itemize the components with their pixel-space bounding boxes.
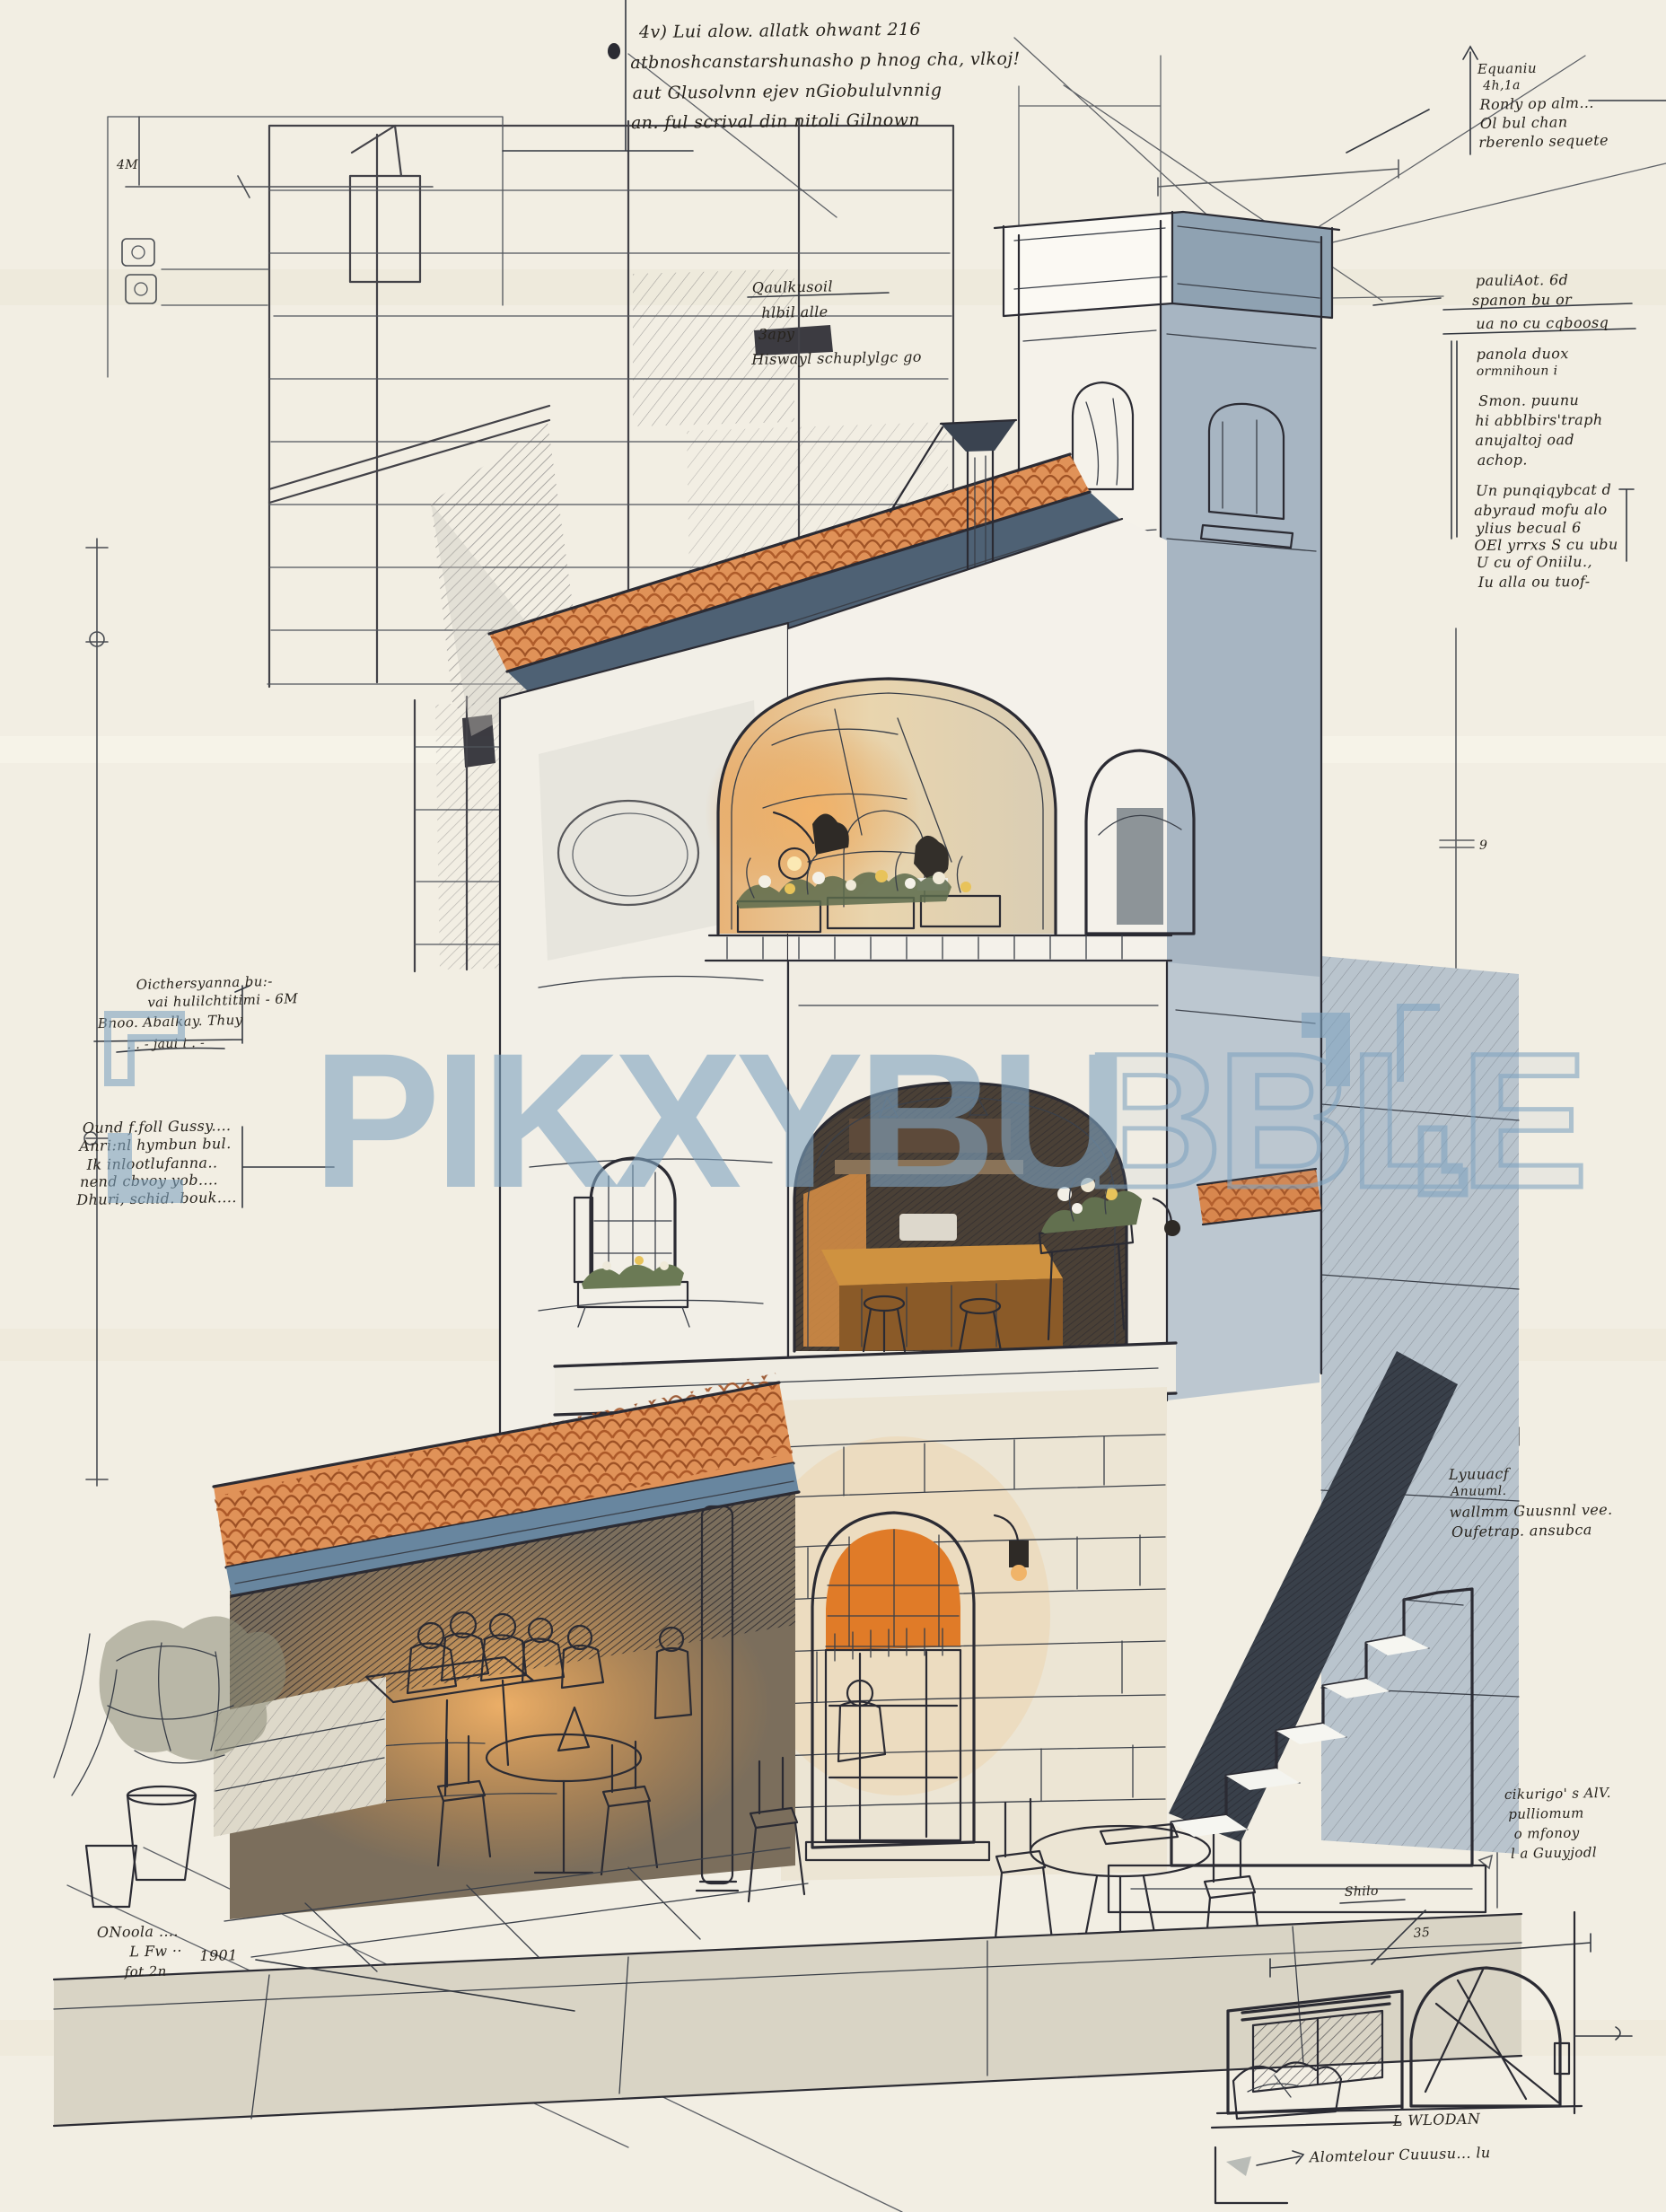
note-line: Un punqiqybcat d xyxy=(1476,481,1611,499)
note-line: OEl yrrxs S cu ubu xyxy=(1474,536,1618,554)
note-line: anujaltoj oad xyxy=(1475,431,1574,449)
tower-cornice xyxy=(995,212,1339,318)
top-note-line: an. ful scrival din nitoli Gilnown xyxy=(631,110,920,133)
plan-note-line: hlbil alle xyxy=(761,303,829,321)
ground-floor-wall xyxy=(745,1387,1167,1881)
note-line: 4h,1a xyxy=(1482,78,1521,93)
label-dim-35: 35 xyxy=(1413,1926,1431,1941)
note-line: Equaniu xyxy=(1477,60,1537,77)
plan-note-line: Hiswayl schuplylgc go xyxy=(750,348,922,368)
note-line: Smon. puunu xyxy=(1478,391,1579,409)
note-line: ormnihoun i xyxy=(1477,364,1558,379)
note-line: l a Guuyjodl xyxy=(1511,1844,1597,1862)
note-line: ua no cu cqboosq xyxy=(1476,314,1609,332)
plan-note-line: Qaulkusoil xyxy=(752,277,833,296)
label-shilo: Shilo xyxy=(1345,1884,1380,1900)
note-line: ylius becual 6 xyxy=(1475,519,1582,537)
sketch-page: 4v) Lui alow. allatk ohwant 216 atbnoshc… xyxy=(0,0,1666,2212)
note-line: U cu of Oniilu., xyxy=(1477,553,1592,571)
note-line: Ik inlootlufanna.. xyxy=(85,1154,217,1173)
architectural-sketch-canvas: 4v) Lui alow. allatk ohwant 216 atbnoshc… xyxy=(0,0,1666,2212)
top-note-line: 4v) Lui alow. allatk ohwant 216 xyxy=(638,20,921,42)
note-line: Oufetrap. ansubca xyxy=(1451,1521,1592,1540)
note-line: Ronly op alm... xyxy=(1478,94,1594,113)
note-line: hi abblbirs'traph xyxy=(1475,411,1602,429)
note-line: o mfonoy xyxy=(1514,1825,1580,1842)
note-line: cikurigo' s AlV. xyxy=(1504,1785,1611,1803)
label-dim-9: 9 xyxy=(1479,838,1487,853)
note-line: L Fw ·· xyxy=(128,1942,182,1960)
note-line: Anri:nl hymbun bul. xyxy=(77,1135,232,1154)
top-note-line: aut Glusolvnn ejev nGiobululvnnig xyxy=(633,80,943,103)
note-line: panola duox xyxy=(1477,345,1569,363)
caption-line: L WLODAN xyxy=(1392,2110,1482,2129)
note-line: Iu alla ou tuof- xyxy=(1477,573,1591,591)
note-line: wallmm Guusnnl vee. xyxy=(1449,1501,1612,1521)
note-line: Ound f.foll Gussy.... xyxy=(83,1117,232,1137)
note-line: achop. xyxy=(1477,452,1528,469)
note-line: pulliomum xyxy=(1508,1804,1584,1821)
watermark-text-solid: PIKXYBU xyxy=(312,1014,1122,1228)
plan-note-line: 3apy xyxy=(758,325,795,343)
top-note-line: atbnoshcanstarshunasho p hnog cha, vlkoj… xyxy=(630,49,1021,74)
label-dim-4m: 4M xyxy=(116,158,138,172)
note-line: spanon bu or xyxy=(1472,291,1573,309)
note-line: Lyuuacf xyxy=(1448,1465,1512,1483)
note-line: Ol bul chan xyxy=(1480,113,1568,132)
year-label: 1901 xyxy=(199,1946,238,1964)
note-line: pauliAot. 6d xyxy=(1476,271,1569,289)
note-line: Anuuml. xyxy=(1449,1484,1506,1499)
watermark: PIKXYBU BBLE xyxy=(108,1007,1583,1228)
note-line: ONoola .... xyxy=(97,1922,179,1941)
note-line: fot 2n xyxy=(124,1963,167,1980)
note-line: abyraud mofu alo xyxy=(1474,501,1608,519)
note-line: rberenlo sequete xyxy=(1478,131,1609,151)
